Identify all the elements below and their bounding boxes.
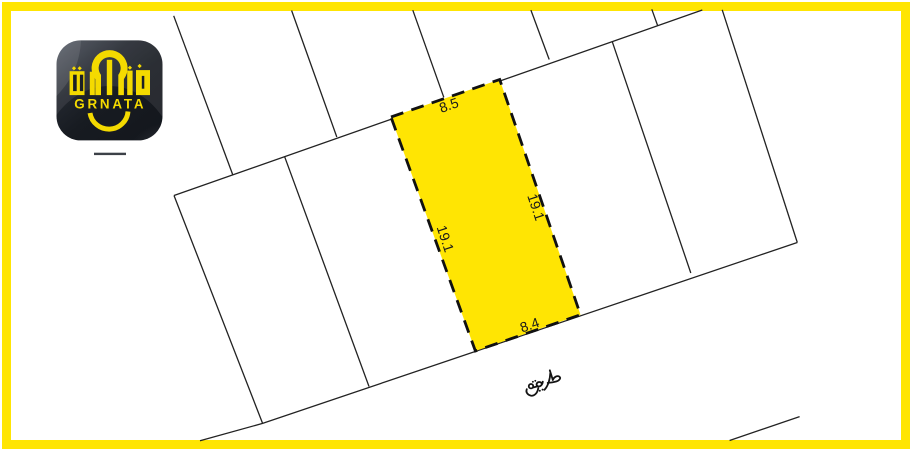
svg-text:GRNATA: GRNATA: [74, 97, 146, 112]
